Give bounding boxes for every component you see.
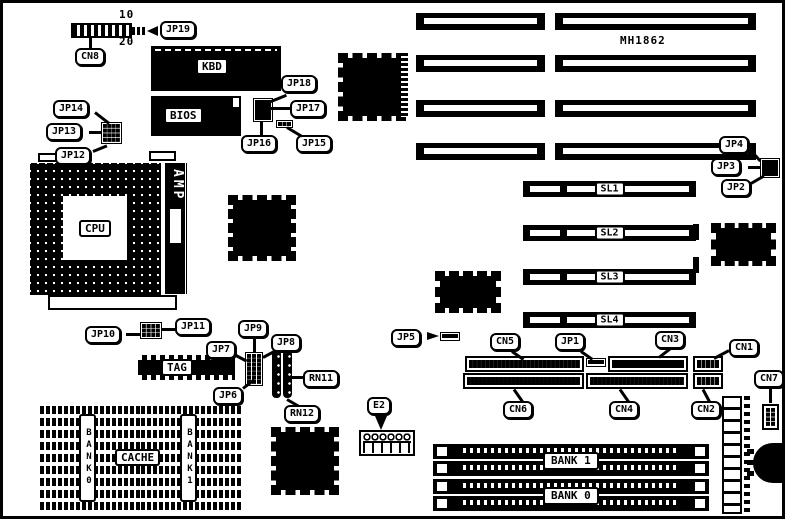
- jp5-jumper: [440, 332, 460, 341]
- callout-rn11: RN11: [303, 370, 339, 388]
- isa-slot-1-right: [555, 13, 756, 30]
- callout-jp13: JP13: [46, 123, 82, 141]
- amp-socket-label: AMP: [170, 169, 185, 201]
- callout-rn12: RN12: [284, 405, 320, 423]
- callout-jp2: JP2: [721, 179, 751, 197]
- callout-jp17: JP17: [290, 100, 326, 118]
- pin-header-cn2: [693, 373, 723, 389]
- cpu-socket-tab-right: [149, 151, 176, 161]
- keyboard-din-connector: [753, 443, 785, 483]
- qfp-chip-center: [435, 271, 501, 313]
- simm-bank1-label: BANK 1: [543, 452, 599, 470]
- isa-slot-1-left: [416, 13, 545, 30]
- isa-slot-2-left: [416, 55, 545, 72]
- jp19-arrow: [147, 26, 158, 36]
- callout-cn2: CN2: [691, 401, 721, 419]
- cache-bank1-label: BANK1: [180, 414, 197, 502]
- pin-header-cn3: [608, 356, 688, 372]
- callout-jp8: JP8: [271, 334, 301, 352]
- sl2-label: SL2: [594, 226, 624, 241]
- pin-header-cn5: [465, 356, 584, 372]
- tag-chip-label: TAG: [161, 359, 193, 376]
- callout-jp4: JP4: [719, 136, 749, 154]
- cn7-lead-line: [769, 388, 772, 403]
- callout-jp1: JP1: [555, 333, 585, 351]
- pin-header-cn6: [463, 373, 584, 389]
- callout-jp11: JP11: [175, 318, 211, 336]
- callout-jp18: JP18: [281, 75, 317, 93]
- rn11-lead-line: [289, 376, 303, 379]
- vlb-slot-sl2: SL2: [523, 225, 696, 241]
- jp11-lead-line: [161, 328, 176, 331]
- cache-label: CACHE: [115, 449, 160, 466]
- jp13-lead-line: [89, 131, 101, 134]
- jp10-lead-line: [126, 333, 140, 336]
- jp3-lead-line: [748, 166, 760, 169]
- kbd-chip-label: KBD: [196, 58, 228, 75]
- vlb-slot-sl3: SL3: [523, 269, 696, 285]
- smd-component-strip: [399, 53, 408, 117]
- rn11-resistor-network: [272, 350, 281, 398]
- callout-jp19: JP19: [160, 21, 196, 39]
- bios-chip-label: BIOS: [164, 107, 203, 124]
- isa-slot-3-right: [555, 100, 756, 117]
- e2-connector: [359, 430, 415, 456]
- jp12-lead-line: [92, 144, 107, 152]
- power-connector-pins: [744, 396, 750, 514]
- jp15-jumper: [276, 120, 293, 128]
- callout-cn4: CN4: [609, 401, 639, 419]
- pin-header-cn1: [693, 356, 723, 372]
- callout-cn6: CN6: [503, 401, 533, 419]
- pin-header-cn7: [762, 404, 779, 430]
- qfp-chip-bottom: [271, 427, 339, 495]
- cn8-pin10-label: 10: [119, 8, 134, 21]
- jp9-lead-line: [253, 338, 256, 352]
- din-pin-3: [747, 471, 754, 476]
- callout-jp5: JP5: [391, 329, 421, 347]
- callout-jp12: JP12: [55, 147, 91, 165]
- callout-cn5: CN5: [490, 333, 520, 351]
- capacitor-1: [693, 224, 699, 240]
- cache-bank0-label: BANK0: [79, 414, 96, 502]
- isa-slot-4-left: [416, 143, 545, 160]
- callout-cn3: CN3: [655, 331, 685, 349]
- jp19-pin-strip: [132, 27, 147, 35]
- callout-jp6: JP6: [213, 387, 243, 405]
- din-pin-2: [747, 460, 754, 465]
- amp-socket-bar: AMP: [165, 163, 188, 294]
- rn12-resistor-network: [283, 350, 292, 398]
- cpu-socket-lever: [48, 295, 177, 310]
- jp2-lead-line: [750, 175, 764, 185]
- amp-socket-handle: [169, 208, 182, 244]
- din-pin-1: [747, 449, 754, 454]
- capacitor-2: [693, 257, 699, 273]
- motherboard-diagram: 10 20 JP19 CN8 KBD BIOS JP18 JP17 JP16 J…: [0, 0, 785, 519]
- jp10-jp11-jumper-block: [140, 322, 162, 339]
- callout-e2: E2: [367, 397, 391, 415]
- isa-slot-2-right: [555, 55, 756, 72]
- sl3-label: SL3: [594, 270, 624, 285]
- jp5-arrow: [427, 332, 439, 340]
- qfp-chip-right: [711, 223, 776, 266]
- callout-jp14: JP14: [53, 100, 89, 118]
- simm-bank0-label: BANK 0: [543, 487, 599, 505]
- jp17-lead-line: [271, 107, 290, 110]
- qfp-chip-top-center: [338, 53, 406, 121]
- sl1-label: SL1: [594, 182, 624, 197]
- board-model-text: MH1862: [620, 34, 666, 47]
- jp12-jp13-jp14-jumper-block: [101, 122, 122, 144]
- bios-chip-notch: [233, 98, 239, 107]
- pin-header-cn4: [586, 373, 688, 389]
- jp16-lead-line: [260, 121, 263, 136]
- vlb-slot-sl4: SL4: [523, 312, 696, 328]
- e2-connector-pins-bottom: [363, 441, 411, 453]
- callout-jp16: JP16: [241, 135, 277, 153]
- callout-jp7: JP7: [206, 341, 236, 359]
- sl4-label: SL4: [594, 313, 624, 328]
- callout-jp3: JP3: [711, 158, 741, 176]
- qfp-chip-mid-left: [228, 195, 296, 261]
- cpu-label: CPU: [79, 220, 111, 237]
- isa-slot-3-left: [416, 100, 545, 117]
- callout-jp10: JP10: [85, 326, 121, 344]
- callout-jp15: JP15: [296, 135, 332, 153]
- callout-cn7: CN7: [754, 370, 784, 388]
- vlb-slot-sl1: SL1: [523, 181, 696, 197]
- callout-cn8: CN8: [75, 48, 105, 66]
- cn8-pin20-label: 20: [119, 35, 134, 48]
- power-connector: [722, 396, 742, 514]
- callout-jp9: JP9: [238, 320, 268, 338]
- e2-arrow: [375, 416, 387, 430]
- callout-cn1: CN1: [729, 339, 759, 357]
